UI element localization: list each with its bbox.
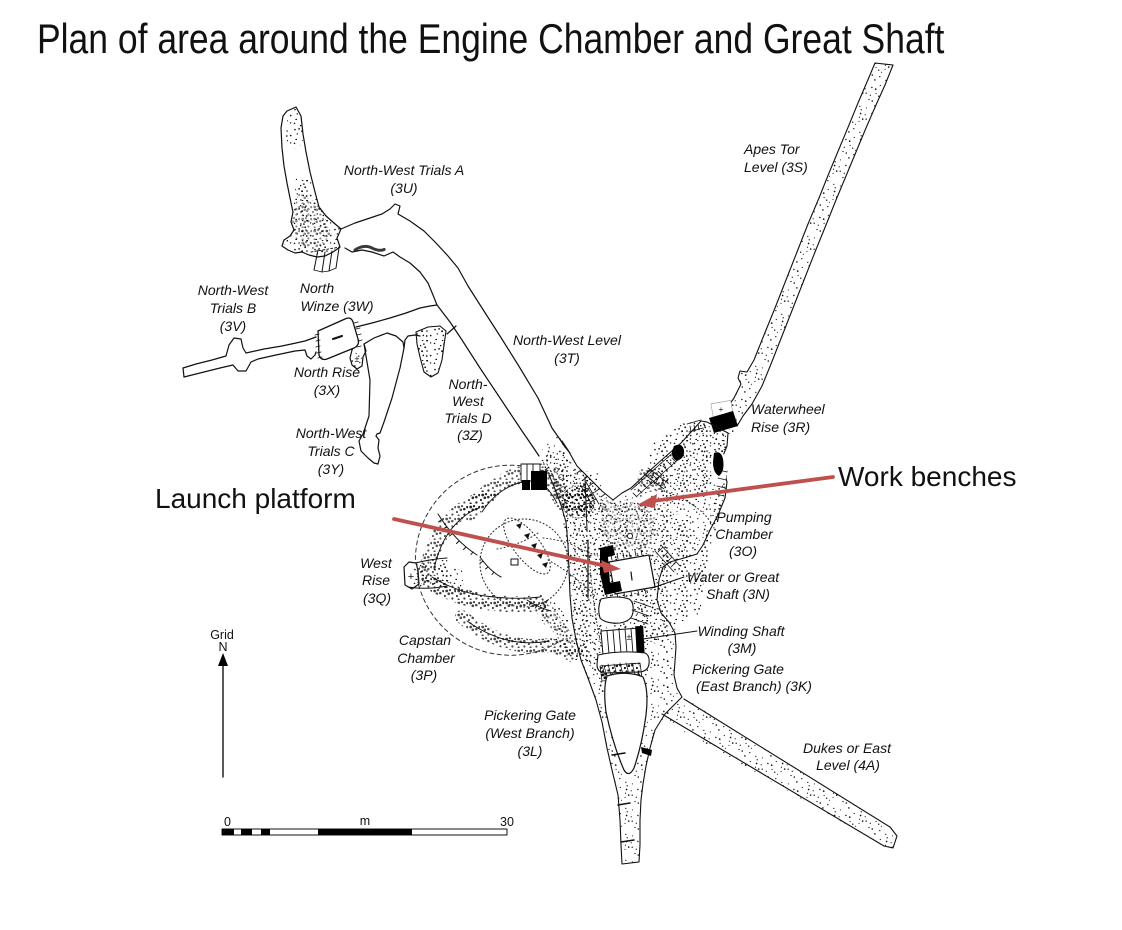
- svg-text:Water or Great: Water or Great: [687, 569, 780, 585]
- svg-text:30: 30: [500, 815, 514, 829]
- svg-text:+: +: [719, 405, 724, 414]
- svg-text:Level (4A): Level (4A): [816, 757, 880, 773]
- svg-text:Winze (3W): Winze (3W): [301, 298, 374, 314]
- svg-text:±: ±: [627, 632, 632, 642]
- svg-text:Capstan: Capstan: [399, 632, 451, 648]
- svg-text:Trials D: Trials D: [444, 410, 491, 426]
- svg-text:(3L): (3L): [518, 743, 543, 759]
- svg-text:Chamber: Chamber: [715, 526, 774, 542]
- svg-text:Chamber: Chamber: [397, 650, 456, 666]
- svg-text:Rise: Rise: [362, 572, 390, 588]
- svg-text:Pickering Gate: Pickering Gate: [692, 661, 784, 677]
- svg-text:±: ±: [355, 354, 360, 364]
- svg-text:Waterwheel: Waterwheel: [751, 401, 826, 417]
- svg-text:North-West: North-West: [296, 425, 368, 441]
- svg-text:North-: North-: [449, 376, 488, 392]
- svg-text:+: +: [408, 571, 414, 583]
- svg-text:m: m: [360, 814, 370, 828]
- svg-text:North: North: [300, 280, 334, 296]
- svg-text:Plan of area around the Engine: Plan of area around the Engine Chamber a…: [37, 16, 945, 62]
- svg-text:(3X): (3X): [314, 382, 340, 398]
- svg-text:Pickering Gate: Pickering Gate: [484, 707, 576, 723]
- svg-text:Launch platform: Launch platform: [155, 483, 356, 514]
- svg-text:(East Branch) (3K): (East Branch) (3K): [696, 678, 812, 694]
- svg-text:Trials B: Trials B: [210, 300, 256, 316]
- svg-text:Level (3S): Level (3S): [744, 159, 808, 175]
- svg-text:(3P): (3P): [411, 667, 437, 683]
- svg-text:North Rise: North Rise: [294, 364, 360, 380]
- svg-text:Winding Shaft: Winding Shaft: [697, 623, 785, 639]
- svg-text:North-West Level: North-West Level: [513, 332, 622, 348]
- svg-text:(West Branch): (West Branch): [485, 725, 574, 741]
- svg-text:(3V): (3V): [220, 318, 246, 334]
- svg-text:(3T): (3T): [554, 350, 580, 366]
- svg-text:West: West: [452, 393, 485, 409]
- svg-text:Dukes or East: Dukes or East: [803, 740, 892, 756]
- svg-text:(3Q): (3Q): [363, 590, 391, 606]
- svg-text:(3Y): (3Y): [318, 461, 344, 477]
- svg-text:(3U): (3U): [390, 180, 417, 196]
- svg-text:Apes Tor: Apes Tor: [743, 141, 801, 157]
- svg-text:North-West: North-West: [198, 282, 270, 298]
- svg-text:Trials C: Trials C: [307, 443, 355, 459]
- svg-text:Shaft (3N): Shaft (3N): [706, 586, 770, 602]
- svg-text:Rise (3R): Rise (3R): [751, 419, 810, 435]
- svg-text:Work benches: Work benches: [838, 461, 1016, 492]
- svg-text:0: 0: [224, 815, 231, 829]
- svg-text:(3Z): (3Z): [457, 427, 483, 443]
- svg-text:Pumping: Pumping: [716, 509, 771, 525]
- svg-text:(3M): (3M): [728, 640, 757, 656]
- svg-text:West: West: [360, 555, 393, 571]
- svg-text:(3O): (3O): [729, 543, 757, 559]
- svg-text:North-West Trials A: North-West Trials A: [344, 162, 464, 178]
- svg-text:N: N: [218, 640, 227, 654]
